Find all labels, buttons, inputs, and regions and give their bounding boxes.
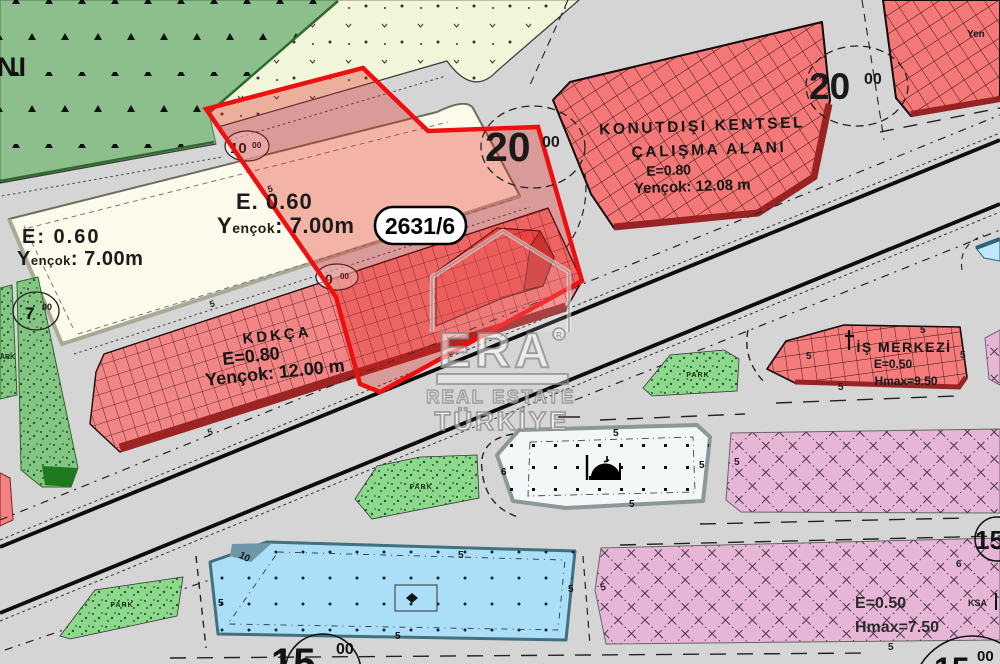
svg-text:Yen: Yen [967, 29, 985, 40]
svg-text:2631/6: 2631/6 [385, 213, 455, 239]
svg-text:5: 5 [838, 382, 844, 393]
svg-text:00: 00 [336, 641, 354, 658]
svg-text:7: 7 [25, 304, 34, 323]
svg-text:İŞ MERKEZİ: İŞ MERKEZİ [856, 339, 951, 355]
svg-text:5: 5 [218, 598, 224, 609]
svg-text:5: 5 [806, 351, 812, 362]
svg-text:PARK: PARK [110, 602, 133, 609]
svg-text:5: 5 [458, 550, 464, 561]
svg-text:5: 5 [734, 457, 740, 468]
svg-text:ERA: ERA [438, 324, 553, 378]
svg-text:5: 5 [960, 350, 966, 361]
svg-text:00: 00 [542, 134, 560, 151]
svg-text:5: 5 [699, 460, 705, 471]
svg-text:KSA: KSA [968, 598, 988, 608]
svg-text:PARK: PARK [409, 484, 432, 491]
svg-text:REAL ESTATE: REAL ESTATE [426, 387, 576, 407]
svg-text:E. 0.60: E. 0.60 [236, 189, 313, 214]
svg-text:5: 5 [920, 325, 926, 336]
svg-text:15: 15 [975, 525, 1000, 555]
svg-text:00: 00 [864, 71, 882, 88]
svg-text:20: 20 [485, 124, 531, 170]
svg-text:6: 6 [501, 467, 507, 478]
svg-text:PARK: PARK [686, 372, 709, 379]
svg-text:E=0.80: E=0.80 [646, 161, 692, 179]
svg-text:5: 5 [613, 428, 619, 439]
svg-text:00: 00 [42, 302, 52, 312]
svg-text:20: 20 [809, 66, 850, 107]
svg-text:E=0.50: E=0.50 [874, 357, 913, 371]
svg-text:Hmax=7.50: Hmax=7.50 [855, 619, 939, 636]
svg-text:5: 5 [629, 499, 635, 510]
svg-text:ARK: ARK [0, 354, 15, 361]
svg-text:15: 15 [934, 651, 970, 664]
svg-text:R: R [556, 331, 562, 340]
svg-text:5: 5 [888, 642, 894, 653]
svg-text:Hmax=9.50: Hmax=9.50 [874, 374, 937, 388]
svg-text:E=0.50: E=0.50 [855, 595, 906, 612]
svg-text:NI: NI [0, 52, 28, 82]
svg-text:E: 0.60: E: 0.60 [22, 226, 100, 248]
svg-text:5: 5 [395, 631, 401, 642]
svg-text:00: 00 [977, 648, 994, 664]
svg-text:5: 5 [568, 584, 574, 595]
svg-text:15: 15 [271, 641, 316, 664]
svg-text:TÜRKİYE: TÜRKİYE [434, 406, 569, 436]
svg-text:6: 6 [956, 559, 962, 570]
